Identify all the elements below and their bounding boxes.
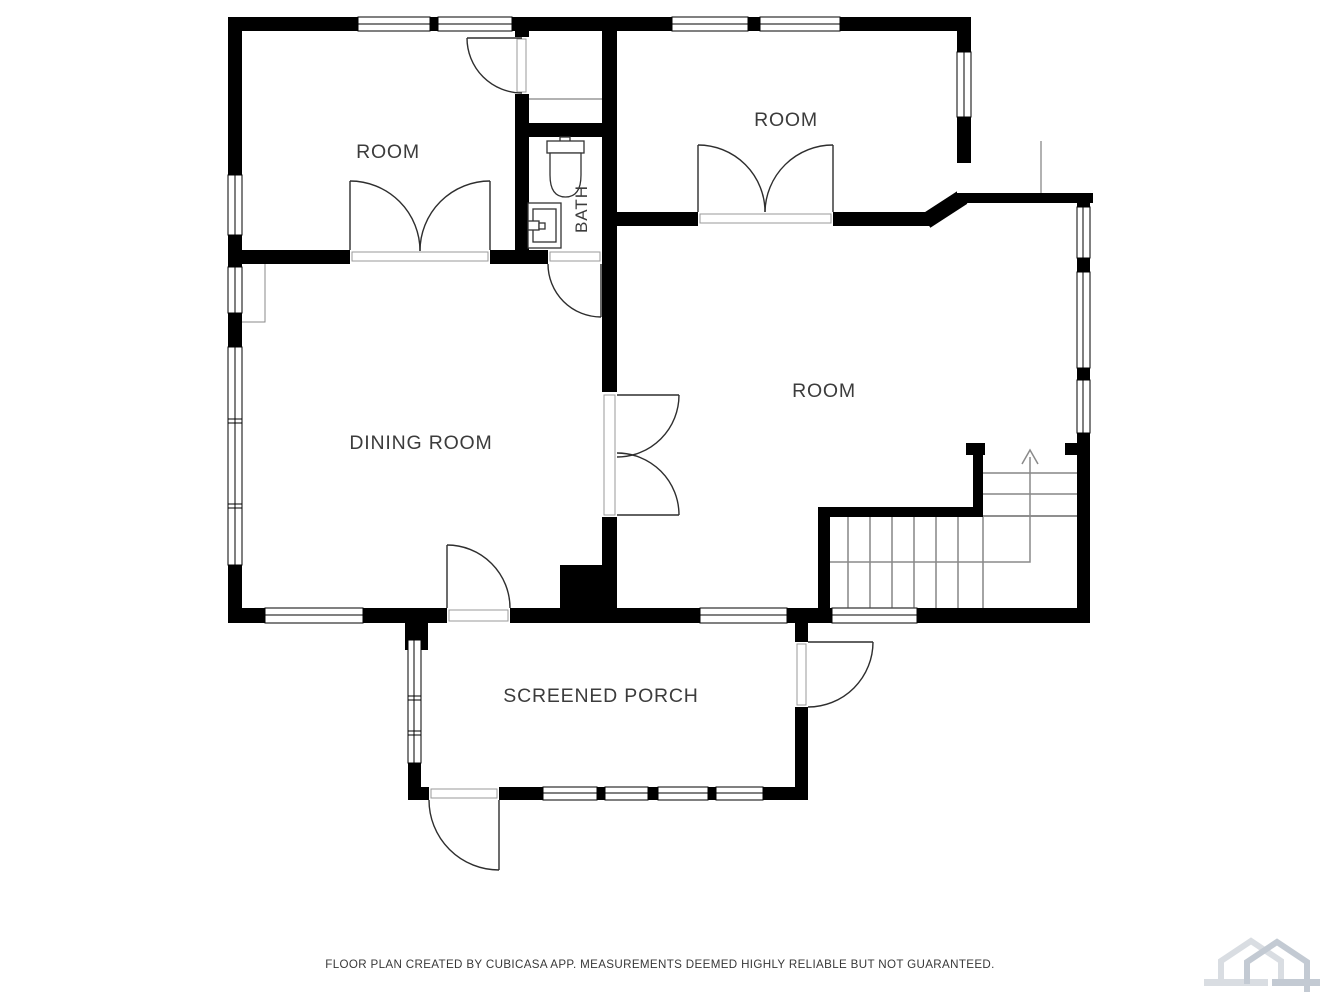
window bbox=[265, 608, 363, 623]
logo-base-dark bbox=[1272, 979, 1320, 986]
room-label-dining: DINING ROOM bbox=[349, 432, 492, 454]
door-arc bbox=[447, 545, 510, 623]
window bbox=[957, 52, 971, 117]
double-door-arc bbox=[698, 145, 833, 226]
window bbox=[672, 17, 748, 31]
window bbox=[658, 787, 708, 800]
window bbox=[1077, 380, 1090, 433]
door-arc bbox=[795, 642, 873, 707]
window bbox=[438, 17, 512, 31]
window bbox=[760, 17, 840, 31]
room-label-porch: SCREENED PORCH bbox=[503, 685, 698, 707]
sink-icon bbox=[528, 203, 561, 248]
floorplan-canvas: ROOM ROOM BATH DINING ROOM ROOM SCREENED… bbox=[0, 0, 1320, 992]
stairs bbox=[830, 450, 1077, 608]
window bbox=[1077, 207, 1090, 258]
room-label-top-right: ROOM bbox=[754, 109, 818, 131]
room-label-main: ROOM bbox=[792, 380, 856, 402]
french-door-arc bbox=[602, 393, 679, 517]
window bbox=[228, 267, 242, 313]
chimney-nook bbox=[242, 264, 265, 322]
wall-opening bbox=[957, 163, 971, 193]
window bbox=[716, 787, 763, 800]
window bbox=[228, 347, 242, 565]
footer-disclaimer: FLOOR PLAN CREATED BY CUBICASA APP. MEAS… bbox=[0, 958, 1320, 971]
window bbox=[1077, 272, 1090, 368]
walls bbox=[228, 17, 1093, 800]
window bbox=[358, 17, 430, 31]
window bbox=[700, 608, 787, 623]
logo-base-light bbox=[1204, 979, 1268, 986]
diagonal-wall bbox=[926, 197, 963, 221]
window bbox=[832, 608, 917, 623]
room-label-bath: BATH bbox=[572, 185, 591, 233]
interior-lines bbox=[242, 99, 1041, 322]
door-arc bbox=[467, 37, 529, 94]
room-label-top-left: ROOM bbox=[356, 141, 420, 163]
window bbox=[408, 640, 421, 763]
door-arc bbox=[429, 787, 499, 870]
stairs-up-arrow-icon bbox=[830, 450, 1038, 562]
window bbox=[605, 787, 648, 800]
door-arc bbox=[548, 250, 602, 317]
double-door-arc bbox=[350, 181, 490, 264]
window bbox=[543, 787, 597, 800]
window bbox=[228, 175, 242, 235]
floorplan-page: ROOM ROOM BATH DINING ROOM ROOM SCREENED… bbox=[0, 0, 1320, 992]
